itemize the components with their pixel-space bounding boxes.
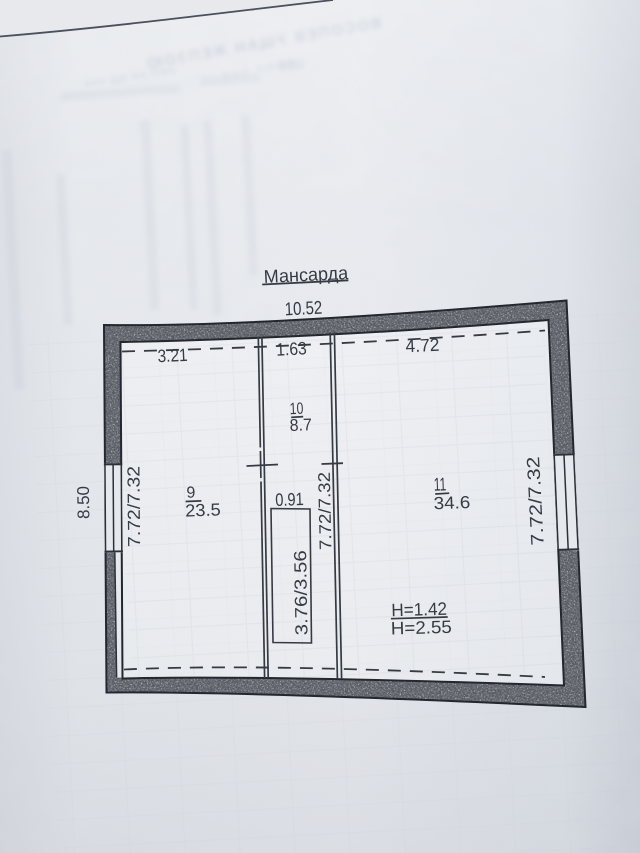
svg-text:11: 11 xyxy=(433,473,446,494)
svg-text:0.91: 0.91 xyxy=(275,489,304,510)
svg-text:7.72/7.32: 7.72/7.32 xyxy=(315,472,336,550)
svg-text:3.76/3.56: 3.76/3.56 xyxy=(290,550,311,635)
svg-text:34.6: 34.6 xyxy=(433,492,470,513)
svg-text:1.63: 1.63 xyxy=(276,338,307,359)
svg-text:3.21: 3.21 xyxy=(157,345,188,366)
svg-text:7.72/7.32: 7.72/7.32 xyxy=(123,466,144,547)
svg-text:4.72: 4.72 xyxy=(405,335,440,357)
svg-text:8.7: 8.7 xyxy=(289,415,312,435)
svg-text:8.50: 8.50 xyxy=(74,486,94,519)
svg-text:23.5: 23.5 xyxy=(185,499,221,520)
svg-text:H=2.55: H=2.55 xyxy=(391,617,453,639)
svg-text:9: 9 xyxy=(186,484,196,501)
svg-text:10.52: 10.52 xyxy=(284,297,322,320)
